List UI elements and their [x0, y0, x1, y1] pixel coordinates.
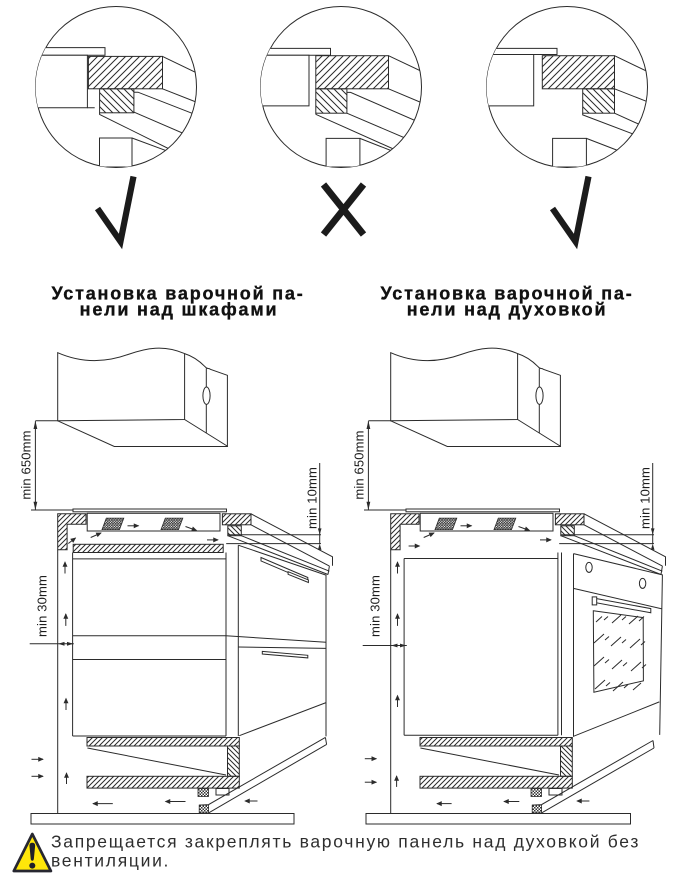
svg-text:вентиляции.: вентиляции. [51, 851, 170, 871]
svg-text:min 10mm: min 10mm [638, 467, 653, 529]
svg-text:min 650mm: min 650mm [352, 430, 367, 499]
svg-text:min 30mm: min 30mm [368, 575, 383, 637]
svg-text:нели над духовкой: нели над духовкой [407, 299, 608, 319]
svg-text:нели над шкафами: нели над шкафами [80, 299, 279, 319]
svg-text:min 30mm: min 30mm [35, 575, 50, 637]
svg-text:Запрещается закреплять варочну: Запрещается закреплять варочную панель н… [51, 832, 640, 852]
svg-text:min 10mm: min 10mm [305, 467, 320, 529]
svg-text:min 650mm: min 650mm [19, 430, 34, 499]
